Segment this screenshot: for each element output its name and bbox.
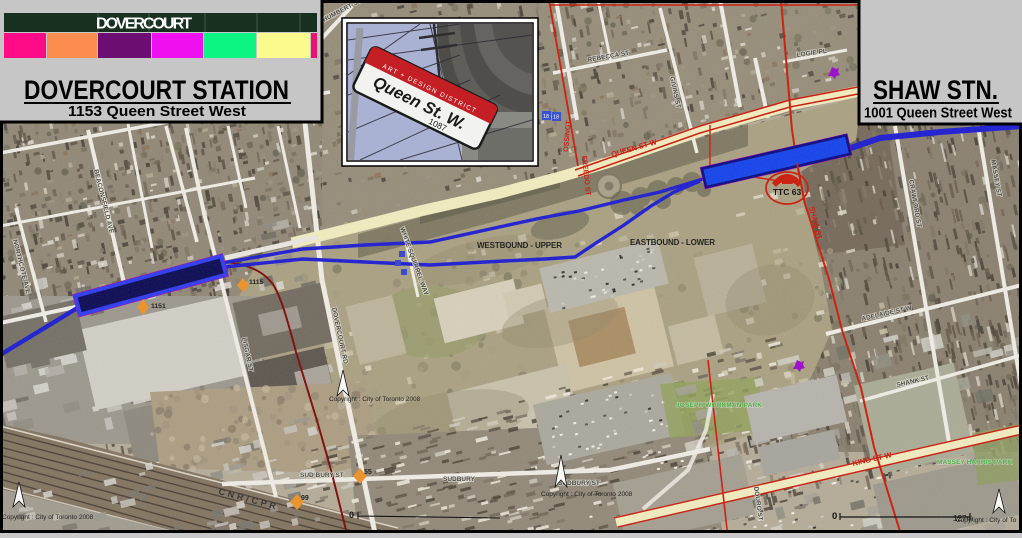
svg-text:1001 Queen Street West: 1001 Queen Street West [864, 105, 1012, 122]
svg-text:DOVERCOURT STATION: DOVERCOURT STATION [24, 75, 289, 105]
svg-text:SHAW STN.: SHAW STN. [873, 75, 998, 105]
svg-text:1153 Queen Street West: 1153 Queen Street West [68, 103, 246, 120]
svg-text:DOVERCOURT: DOVERCOURT [96, 16, 192, 33]
